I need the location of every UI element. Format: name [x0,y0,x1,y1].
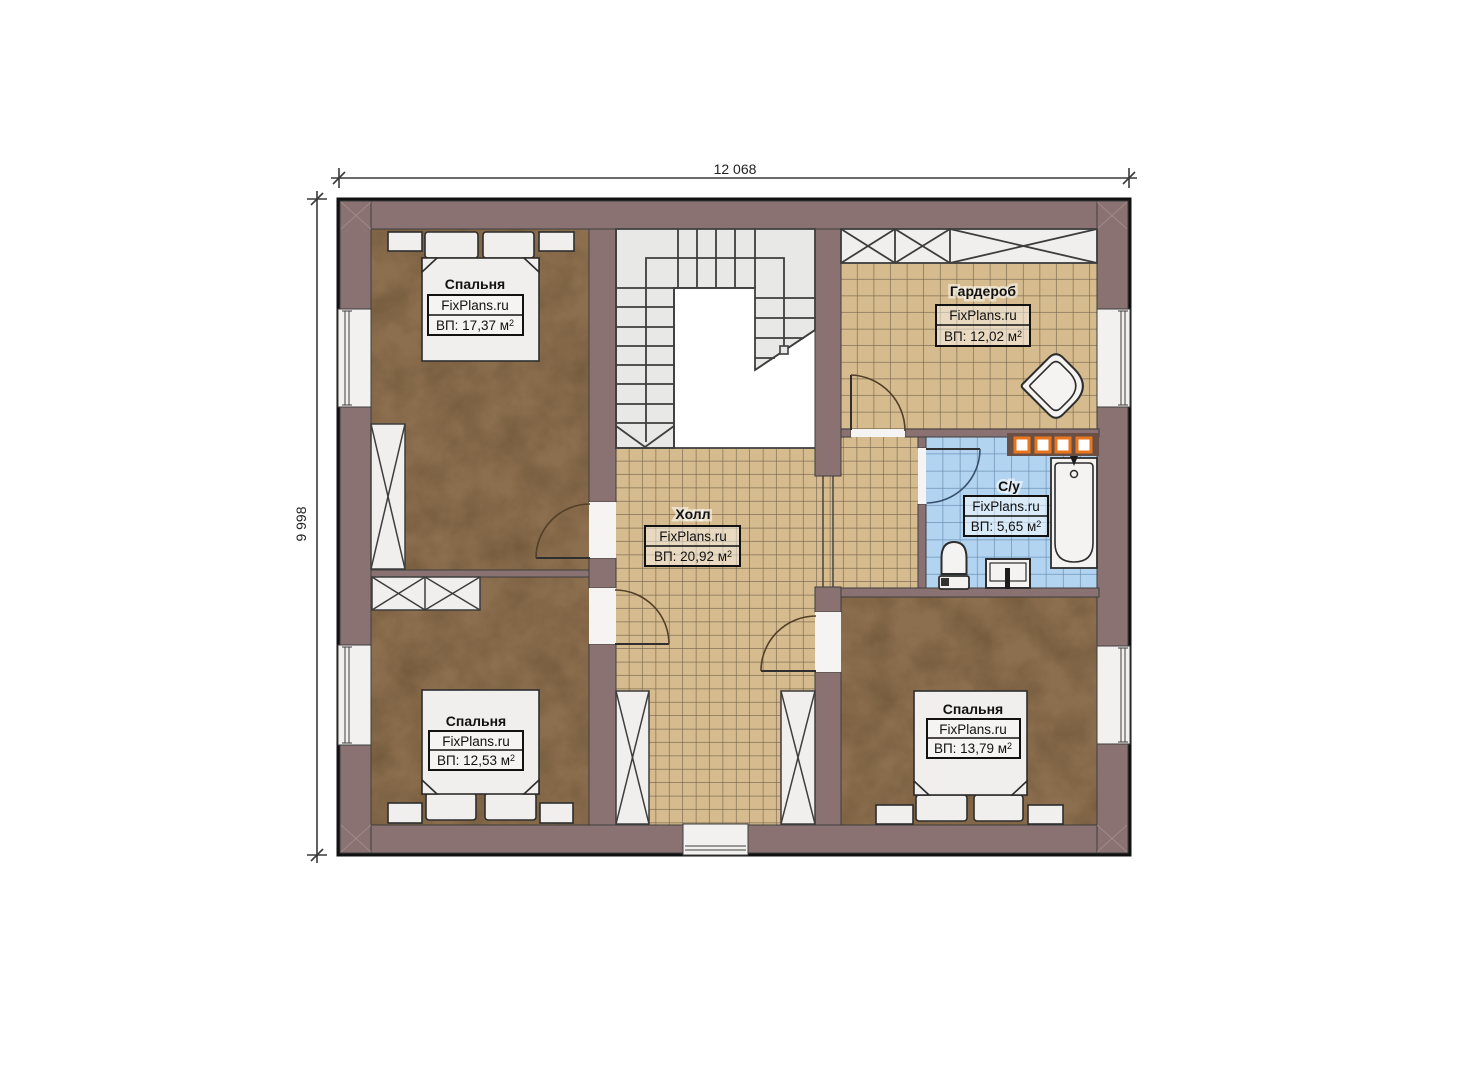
svg-text:Гардероб: Гардероб [950,283,1017,299]
svg-text:FixPlans.ru: FixPlans.ru [659,529,727,544]
svg-text:Спальня: Спальня [445,276,505,292]
svg-text:ВП: 12,02 м2: ВП: 12,02 м2 [944,329,1022,344]
svg-text:FixPlans.ru: FixPlans.ru [949,308,1017,323]
svg-text:ВП: 12,53 м2: ВП: 12,53 м2 [437,753,515,768]
svg-text:Спальня: Спальня [446,713,506,729]
svg-text:Спальня: Спальня [943,701,1003,717]
svg-text:С/у: С/у [998,478,1020,494]
svg-text:FixPlans.ru: FixPlans.ru [939,722,1007,737]
svg-text:ВП: 13,79 м2: ВП: 13,79 м2 [934,741,1012,756]
svg-text:FixPlans.ru: FixPlans.ru [441,298,509,313]
svg-text:ВП: 17,37 м2: ВП: 17,37 м2 [436,318,514,333]
svg-text:9 998: 9 998 [293,506,309,541]
svg-text:12 068: 12 068 [714,161,757,177]
svg-text:FixPlans.ru: FixPlans.ru [972,499,1040,514]
svg-text:Холл: Холл [675,506,710,522]
svg-text:FixPlans.ru: FixPlans.ru [442,734,510,749]
svg-text:ВП: 5,65 м2: ВП: 5,65 м2 [971,519,1042,534]
svg-text:ВП: 20,92 м2: ВП: 20,92 м2 [654,549,732,564]
